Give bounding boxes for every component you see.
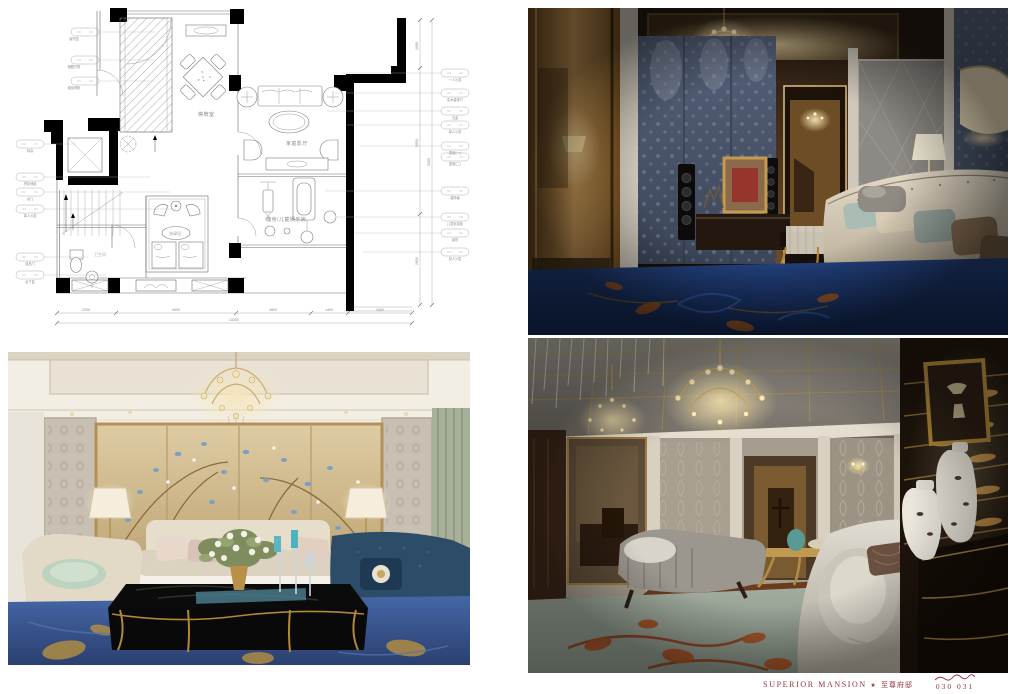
gym-furniture <box>260 178 336 243</box>
svg-text:2800: 2800 <box>269 308 277 312</box>
photo-silver-lounge <box>528 338 1008 673</box>
page-footer: SUPERIOR MANSION ★ 至尊府邸 030 031 <box>763 674 977 691</box>
coffee-table <box>108 584 368 652</box>
footer-title-cn: 至尊府邸 <box>881 681 913 689</box>
svg-text:1650: 1650 <box>415 42 419 50</box>
room-label-spa: 按摩室 <box>169 230 182 237</box>
svg-text:一人沙发: 一人沙发 <box>449 77 463 82</box>
stair-shaft <box>120 18 172 132</box>
svg-text:标高: 标高 <box>27 148 33 153</box>
stairs-symbol <box>62 190 123 236</box>
plant-symbol <box>120 136 136 152</box>
photo-home-theater <box>528 8 1008 335</box>
svg-text:拼花地毯: 拼花地毯 <box>24 181 38 186</box>
svg-text:实木装饰门: 实木装饰门 <box>447 97 463 102</box>
svg-text:5050: 5050 <box>415 139 419 147</box>
cinema-furniture <box>237 86 343 170</box>
dimension-bottom: 2200 4500 2800 1400 2400 13300 <box>55 308 414 325</box>
svg-text:1400: 1400 <box>325 308 333 312</box>
svg-text:13300: 13300 <box>229 318 239 322</box>
cabinet-symbol <box>186 25 226 36</box>
svg-text:装饰画: 装饰画 <box>450 195 460 200</box>
room-label-gym: 健身/儿童娱乐房 <box>266 216 306 223</box>
svg-text:窗帘盒: 窗帘盒 <box>69 36 79 41</box>
svg-text:双人沙发: 双人沙发 <box>449 256 463 261</box>
room-label-bath: 卫生间 <box>94 251 106 257</box>
room-label-mahjong: 棋牌室 <box>198 111 215 118</box>
svg-text:台下盆: 台下盆 <box>25 279 35 284</box>
room-label-cinema: 家庭影厅 <box>286 140 308 147</box>
svg-text:单人沙发: 单人沙发 <box>449 129 463 134</box>
floorplan-drawing: 棋牌室 家庭影厅 健身/儿童娱乐房 <box>8 4 478 345</box>
portfolio-page: { "footer": { "title_en": "SUPERIOR MANS… <box>0 0 1015 694</box>
flourish-ornament <box>933 674 977 682</box>
photo-gold-living-room <box>8 352 470 665</box>
svg-text:台几: 台几 <box>27 196 34 201</box>
svg-text:单人沙发: 单人沙发 <box>24 213 38 218</box>
svg-text:2400: 2400 <box>376 308 384 312</box>
svg-text:成品饰柜: 成品饰柜 <box>68 85 82 90</box>
svg-text:暗藏灯带: 暗藏灯带 <box>68 64 82 69</box>
svg-text:壁纸(一): 壁纸(一) <box>449 150 461 155</box>
page-numbers: 030 031 <box>933 674 977 691</box>
page-number-left: 030 <box>936 682 953 691</box>
footer-title: SUPERIOR MANSION ★ 至尊府邸 <box>763 680 913 690</box>
svg-text:4500: 4500 <box>172 308 180 312</box>
svg-text:五金: 五金 <box>452 115 459 120</box>
plan-walls-black <box>44 8 406 311</box>
footer-title-en: SUPERIOR MANSION <box>763 680 867 689</box>
page-number-right: 031 <box>957 682 974 691</box>
mahjong-table <box>166 40 240 114</box>
footer-star-icon: ★ <box>870 683 877 689</box>
svg-text:壁纸(二): 壁纸(二) <box>449 161 461 166</box>
svg-text:2200: 2200 <box>82 308 90 312</box>
svg-text:9350: 9350 <box>427 158 431 166</box>
dimension-right: 1650 5050 2650 9350 <box>415 18 434 307</box>
svg-text:成品门: 成品门 <box>25 261 35 266</box>
svg-text:2650: 2650 <box>415 257 419 265</box>
elevator-symbol <box>68 138 102 172</box>
svg-text:儿童玩具柜: 儿童玩具柜 <box>447 221 464 226</box>
svg-text:窗帘: 窗帘 <box>452 237 458 242</box>
